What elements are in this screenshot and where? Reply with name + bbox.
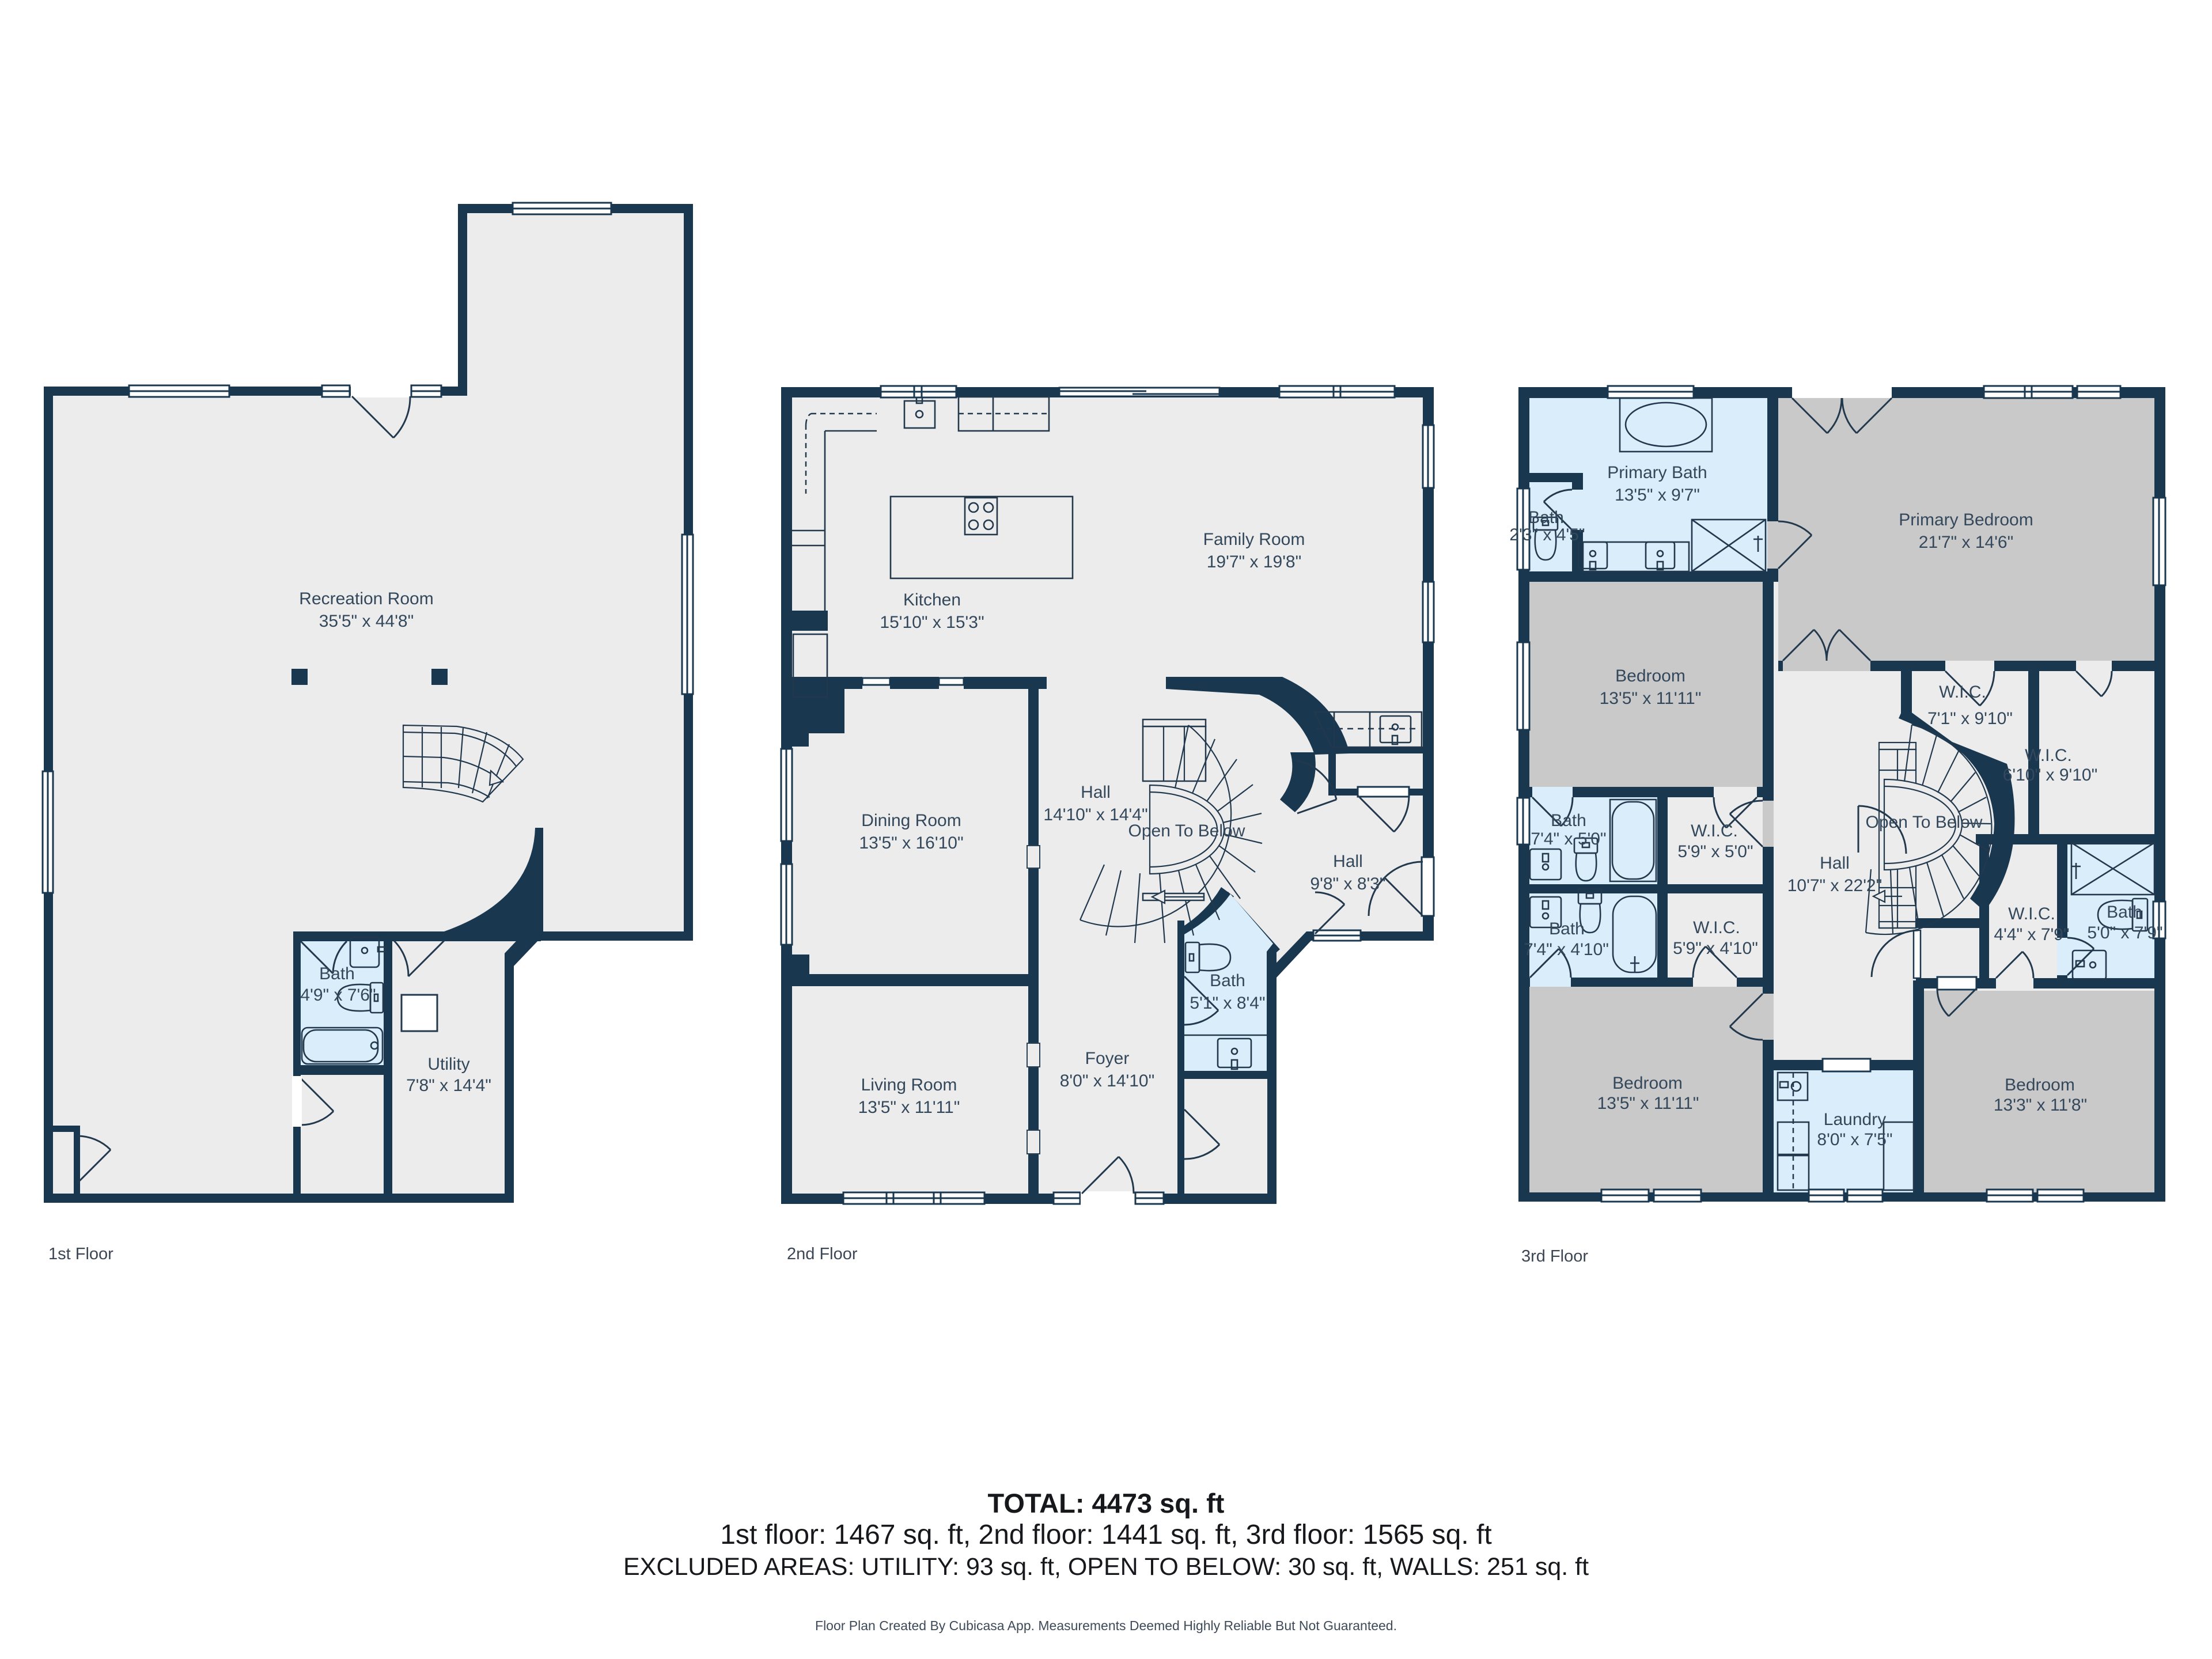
- svg-text:Floor Plan Created By Cubicasa: Floor Plan Created By Cubicasa App. Meas…: [815, 1618, 1397, 1633]
- svg-text:19'7" x 19'8": 19'7" x 19'8": [1207, 552, 1302, 571]
- svg-text:Laundry: Laundry: [1824, 1110, 1886, 1129]
- svg-text:Bath: Bath: [1549, 919, 1585, 938]
- svg-text:Primary Bath: Primary Bath: [1607, 463, 1707, 482]
- svg-text:21'7" x 14'6": 21'7" x 14'6": [1919, 533, 2014, 552]
- svg-text:10'7" x 22'2": 10'7" x 22'2": [1787, 876, 1883, 895]
- svg-text:TOTAL: 4473 sq. ft: TOTAL: 4473 sq. ft: [988, 1488, 1225, 1518]
- svg-text:Bath: Bath: [1551, 811, 1586, 830]
- svg-text:Foyer: Foyer: [1085, 1049, 1130, 1068]
- svg-text:7'1" x 9'10": 7'1" x 9'10": [1927, 709, 2013, 728]
- svg-text:7'4" x 4'10": 7'4" x 4'10": [1524, 940, 1609, 959]
- svg-text:Bedroom: Bedroom: [1612, 1074, 1683, 1093]
- svg-text:Recreation Room: Recreation Room: [299, 589, 433, 608]
- svg-text:W.I.C.: W.I.C.: [1693, 918, 1740, 937]
- svg-text:Open To Below: Open To Below: [1128, 821, 1245, 840]
- svg-text:Bedroom: Bedroom: [2005, 1075, 2075, 1094]
- svg-text:Kitchen: Kitchen: [903, 590, 961, 609]
- svg-text:35'5" x 44'8": 35'5" x 44'8": [319, 612, 414, 631]
- svg-text:W.I.C.: W.I.C.: [1939, 683, 1986, 702]
- svg-text:15'10" x 15'3": 15'10" x 15'3": [880, 613, 984, 632]
- svg-text:13'5" x 11'11": 13'5" x 11'11": [1600, 689, 1702, 708]
- svg-text:Hall: Hall: [1081, 783, 1111, 802]
- svg-text:13'3" x 11'8": 13'3" x 11'8": [1994, 1096, 2087, 1115]
- svg-text:Open To Below: Open To Below: [1866, 813, 1983, 832]
- svg-text:Dining Room: Dining Room: [861, 811, 961, 830]
- svg-text:Hall: Hall: [1820, 854, 1850, 873]
- svg-text:Hall: Hall: [1333, 852, 1363, 871]
- svg-text:Bath: Bath: [2107, 903, 2142, 922]
- svg-text:5'1" x 8'4": 5'1" x 8'4": [1190, 994, 1265, 1013]
- svg-text:Bedroom: Bedroom: [1615, 666, 1685, 685]
- svg-text:13'5" x 16'10": 13'5" x 16'10": [859, 834, 963, 853]
- svg-text:Bath: Bath: [319, 964, 355, 983]
- svg-text:2'3" x 4'5": 2'3" x 4'5": [1509, 525, 1585, 544]
- svg-text:W.I.C.: W.I.C.: [2008, 904, 2055, 923]
- svg-text:5'9" x 5'0": 5'9" x 5'0": [1677, 842, 1753, 861]
- svg-text:Utility: Utility: [427, 1055, 469, 1074]
- svg-text:5'0" x 7'9": 5'0" x 7'9": [2087, 923, 2162, 942]
- svg-text:6'10" x 9'10": 6'10" x 9'10": [2003, 766, 2098, 785]
- svg-text:13'5" x 11'11": 13'5" x 11'11": [1597, 1094, 1699, 1113]
- svg-text:13'5" x 11'11": 13'5" x 11'11": [858, 1098, 960, 1117]
- svg-text:W.I.C.: W.I.C.: [2025, 746, 2072, 765]
- svg-text:4'4" x 7'9": 4'4" x 7'9": [1994, 925, 2069, 944]
- svg-text:Family Room: Family Room: [1203, 530, 1305, 549]
- svg-text:Bath: Bath: [1210, 971, 1245, 990]
- svg-text:5'9" x 4'10": 5'9" x 4'10": [1673, 939, 1758, 958]
- svg-text:9'8" x 8'3": 9'8" x 8'3": [1310, 874, 1385, 893]
- svg-text:3rd Floor: 3rd Floor: [1521, 1247, 1588, 1266]
- svg-text:8'0" x 14'10": 8'0" x 14'10": [1060, 1071, 1155, 1090]
- svg-text:2nd Floor: 2nd Floor: [787, 1245, 858, 1263]
- svg-text:Primary Bedroom: Primary Bedroom: [1899, 510, 2033, 529]
- svg-text:7'8" x 14'4": 7'8" x 14'4": [406, 1076, 491, 1095]
- svg-text:1st Floor: 1st Floor: [48, 1245, 113, 1263]
- svg-text:13'5" x 9'7": 13'5" x 9'7": [1615, 486, 1700, 505]
- svg-text:4'9" x 7'6": 4'9" x 7'6": [300, 986, 376, 1005]
- svg-text:1st floor: 1467 sq. ft, 2nd fl: 1st floor: 1467 sq. ft, 2nd floor: 1441 …: [720, 1520, 1491, 1550]
- svg-text:7'4" x 5'0": 7'4" x 5'0": [1531, 829, 1606, 849]
- svg-text:W.I.C.: W.I.C.: [1691, 821, 1738, 840]
- svg-text:EXCLUDED AREAS: UTILITY: 93 sq: EXCLUDED AREAS: UTILITY: 93 sq. ft, OPEN…: [623, 1553, 1589, 1581]
- svg-text:Bath: Bath: [1528, 508, 1564, 527]
- svg-text:8'0" x 7'5": 8'0" x 7'5": [1817, 1130, 1892, 1149]
- svg-text:Living Room: Living Room: [861, 1075, 957, 1094]
